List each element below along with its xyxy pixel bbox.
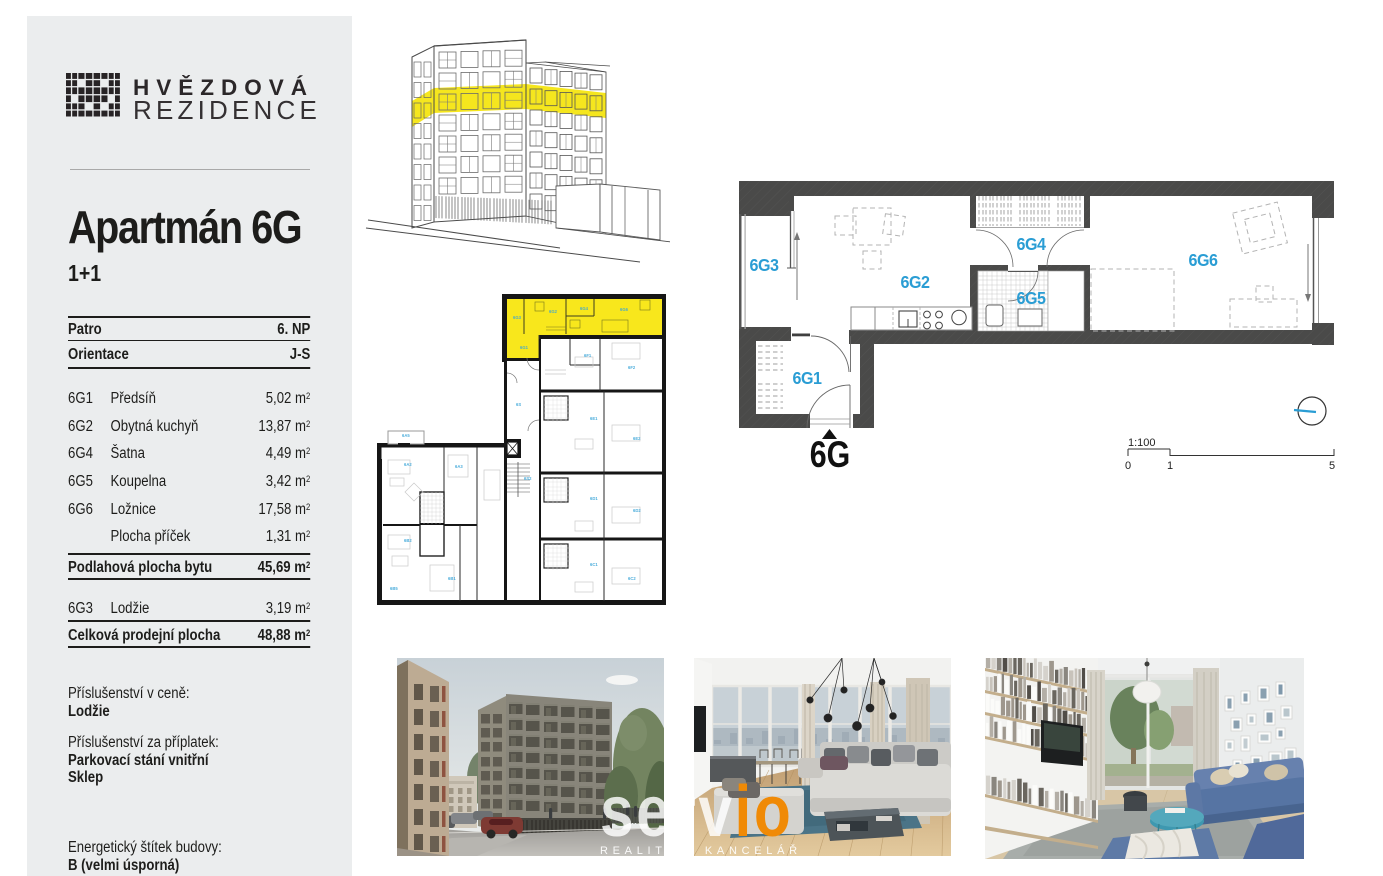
svg-text:6G2: 6G2: [900, 272, 929, 292]
svg-text:6S2: 6S2: [524, 476, 532, 481]
svg-text:6F1: 6F1: [584, 353, 592, 358]
svg-text:0: 0: [1125, 460, 1131, 472]
svg-text:6G6: 6G6: [620, 307, 629, 312]
svg-text:6D1: 6D1: [590, 496, 598, 501]
svg-text:6D2: 6D2: [633, 508, 641, 513]
svg-text:6G3: 6G3: [749, 255, 778, 275]
svg-text:6G3: 6G3: [513, 315, 522, 320]
svg-text:6B1: 6B1: [448, 576, 456, 581]
svg-text:6G5: 6G5: [1016, 288, 1045, 308]
svg-text:6G1: 6G1: [520, 345, 529, 350]
svg-text:6C1: 6C1: [590, 562, 598, 567]
svg-text:6B2: 6B2: [404, 538, 412, 543]
svg-text:6S: 6S: [516, 402, 521, 407]
svg-text:6E2: 6E2: [633, 436, 641, 441]
svg-text:6G4: 6G4: [1016, 234, 1046, 254]
svg-text:6C2: 6C2: [628, 576, 636, 581]
svg-text:6F2: 6F2: [628, 365, 636, 370]
svg-text:6G1: 6G1: [792, 368, 821, 388]
svg-text:6G2: 6G2: [549, 309, 558, 314]
svg-text:6A3: 6A3: [455, 464, 463, 469]
svg-text:6B5: 6B5: [390, 586, 398, 591]
svg-text:6A2: 6A2: [404, 462, 412, 467]
svg-text:6G6: 6G6: [1188, 250, 1217, 270]
svg-text:6G: 6G: [810, 434, 850, 475]
svg-text:1: 1: [1167, 460, 1173, 472]
svg-text:6E1: 6E1: [590, 416, 598, 421]
svg-text:6G4: 6G4: [580, 306, 589, 311]
svg-text:5: 5: [1329, 460, 1335, 472]
svg-text:6A5: 6A5: [402, 433, 410, 438]
svg-text:1:100: 1:100: [1128, 437, 1156, 449]
